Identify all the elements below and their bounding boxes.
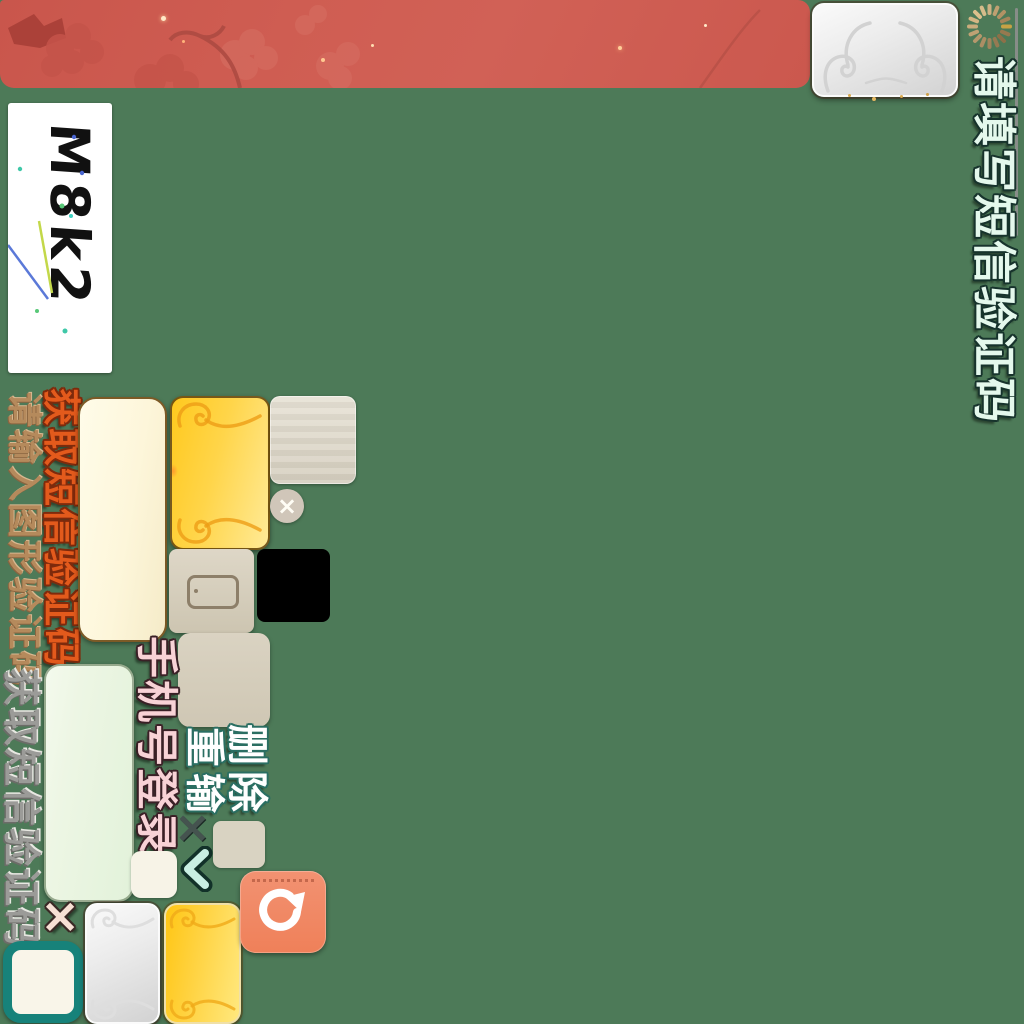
close-x-icon: × <box>277 492 297 520</box>
cloud-ornament-icon <box>172 398 268 548</box>
small-beige-tile[interactable] <box>213 821 265 868</box>
teal-frame-slot[interactable] <box>3 941 83 1023</box>
phone-login-button-text[interactable]: 手机号登录 <box>135 636 177 856</box>
sparkle-dot <box>704 24 707 27</box>
close-circle-button[interactable]: × <box>270 489 304 523</box>
refresh-arrow-icon <box>259 888 307 936</box>
phone-icon-tile[interactable] <box>169 549 254 633</box>
sparkle-dot <box>371 44 374 47</box>
sparkle-dot <box>618 46 622 50</box>
get-sms-code-link-gray[interactable]: 获取短信验证码 <box>2 668 40 948</box>
refresh-captcha-button[interactable] <box>240 871 326 953</box>
striped-beige-tile[interactable] <box>270 396 356 484</box>
cloud-ornament-icon <box>814 5 956 95</box>
gold-dust-dot <box>926 93 929 96</box>
gold-dust-dot <box>848 94 851 97</box>
gold-confirm-button[interactable] <box>170 396 270 550</box>
mint-input-panel[interactable] <box>44 664 134 902</box>
sms-code-prompt-text: 请填写短信验证码 <box>971 56 1015 424</box>
gold-dust-dot <box>900 95 903 98</box>
silver-card-button[interactable] <box>85 903 160 1024</box>
header-banner <box>0 0 810 88</box>
sparkle-dot <box>321 58 325 62</box>
game-screen: 请填写短信验证码 M8k2 获取短信验证码 请输入图形验证码 获取短信验证码 <box>0 0 1024 1024</box>
plum-blossom-decoration <box>0 0 810 88</box>
cream-input-panel[interactable] <box>78 397 167 642</box>
smartphone-icon <box>187 575 239 609</box>
gold-dust-dot <box>872 97 876 101</box>
ornate-cloud-button[interactable] <box>812 3 958 97</box>
cloud-ornament-icon <box>166 905 239 1022</box>
beige-panel-tile[interactable] <box>178 633 270 727</box>
delete-button-text[interactable]: 删除 <box>226 724 267 818</box>
cloud-ornament-icon <box>87 905 158 1022</box>
dark-x-button[interactable]: × <box>174 806 211 850</box>
enter-graphic-code-label: 请输入图形验证码 <box>5 392 40 688</box>
get-sms-code-link-orange[interactable]: 获取短信验证码 <box>42 388 80 668</box>
sparkle-dot <box>161 16 166 21</box>
captcha-noise-lines <box>8 103 112 373</box>
black-preview-tile[interactable] <box>257 549 330 622</box>
stitch-decoration <box>252 879 314 882</box>
pale-x-button[interactable]: × <box>40 892 80 940</box>
sparkle-dot <box>182 40 185 43</box>
gold-card-button[interactable] <box>164 903 241 1024</box>
small-white-tile[interactable] <box>131 851 177 898</box>
captcha-image[interactable]: M8k2 <box>8 103 112 373</box>
loading-spinner-icon <box>966 3 1013 50</box>
chevron-left-icon[interactable] <box>178 846 216 892</box>
